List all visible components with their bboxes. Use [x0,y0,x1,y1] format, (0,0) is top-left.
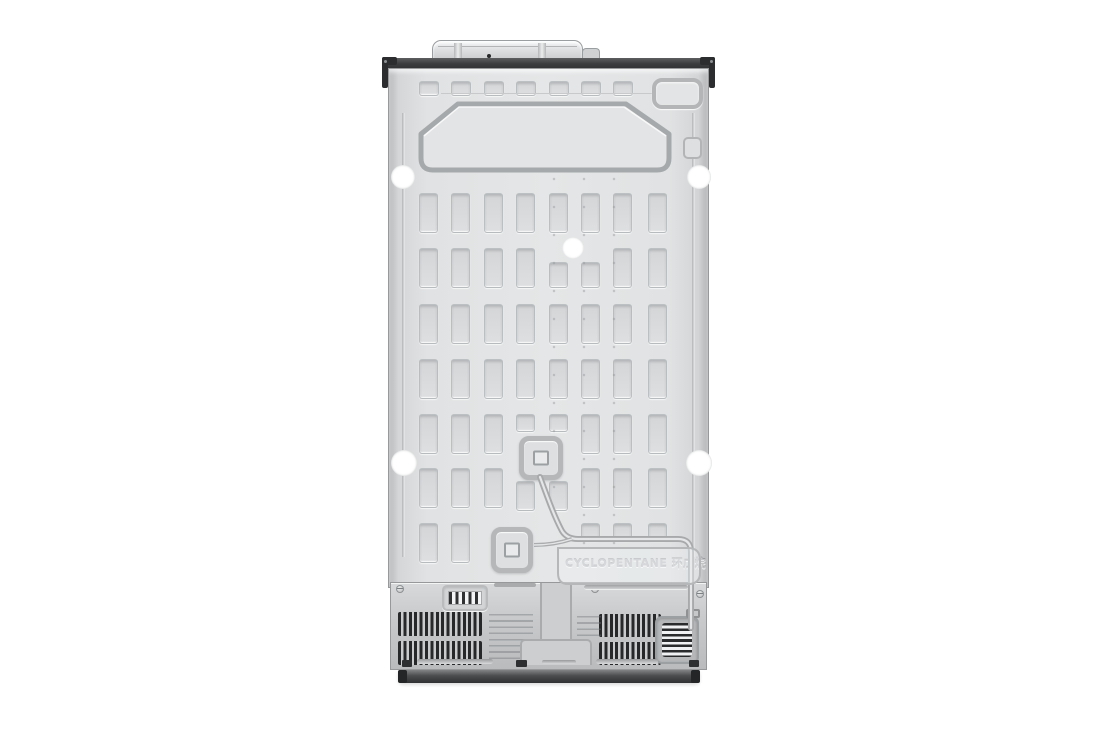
refrigerator-back: CYCLOPENTANE 环戊烷 [385,38,712,686]
emboss-cell [484,304,503,344]
cover-clip [516,660,527,667]
cover-slot [584,585,688,590]
product-image: CYCLOPENTANE 环戊烷 [0,0,1100,730]
emboss-cell [648,468,667,508]
cover-bottom-slot [417,659,493,664]
emboss-cell [419,248,438,288]
mounting-hole [391,165,415,189]
access-plate-hole [533,451,549,466]
emboss-cell [648,304,667,344]
cover-screw [396,585,404,593]
emboss-cell [419,304,438,344]
embossed-rating-text [577,616,601,640]
mounting-hole [686,450,712,476]
emboss-cell [648,523,667,541]
center-channel [540,583,572,645]
mounting-hole [562,237,584,259]
cover-clip [402,660,412,667]
emboss-cell [419,81,439,96]
emboss-cell [419,523,438,563]
emboss-slot-left [428,129,436,163]
access-plate-lower [491,527,533,573]
drain-grille [655,616,699,664]
emboss-cell [451,359,470,399]
emboss-cell [451,523,470,563]
emboss-cell [516,193,535,233]
emboss-cell [648,248,667,288]
bracket-screw [710,60,713,63]
emboss-cell [484,193,503,233]
access-plate-hole [504,543,520,558]
barcode-bars [448,591,482,605]
emboss-cell [451,193,470,233]
emboss-cell [484,414,503,454]
cyclopentane-embossed-text: CYCLOPENTANE 环戊烷 [565,555,705,571]
emboss-cell [516,414,535,432]
cover-slot [494,583,536,587]
emboss-cell [419,359,438,399]
emboss-cell [516,304,535,344]
emboss-cell [451,248,470,288]
emboss-cell [648,193,667,233]
barcode-label [442,585,488,611]
mounting-hole [687,165,711,189]
access-plate-upper [519,436,563,480]
emboss-cell [484,248,503,288]
emboss-cell [516,248,535,288]
spot-weld-dots [539,109,619,559]
cover-bottom-slot [542,660,576,664]
mounting-hole [391,450,417,476]
small-square-recess [683,137,702,159]
emboss-cell [451,304,470,344]
emboss-cell [484,468,503,508]
emboss-cell [648,359,667,399]
emboss-cell [516,481,535,511]
vent-grille-left [398,612,482,666]
cover-clip [689,660,699,667]
top-right-recess [652,78,703,109]
compressor-cover [390,582,707,670]
emboss-cell [484,359,503,399]
emboss-slot-right [657,129,665,163]
emboss-cell [516,359,535,399]
bracket-screw [384,60,387,63]
drain-grille-bars [662,623,692,657]
base-plinth [398,670,700,683]
emboss-cell [419,468,438,508]
cover-bottom-slot [596,659,658,664]
emboss-cell [648,414,667,454]
emboss-cell [451,468,470,508]
cover-screw [696,590,704,598]
tube-clamp [686,609,700,618]
emboss-cell [451,414,470,454]
emboss-cell [419,414,438,454]
emboss-cell [419,193,438,233]
back-panel: CYCLOPENTANE 环戊烷 [388,68,709,588]
